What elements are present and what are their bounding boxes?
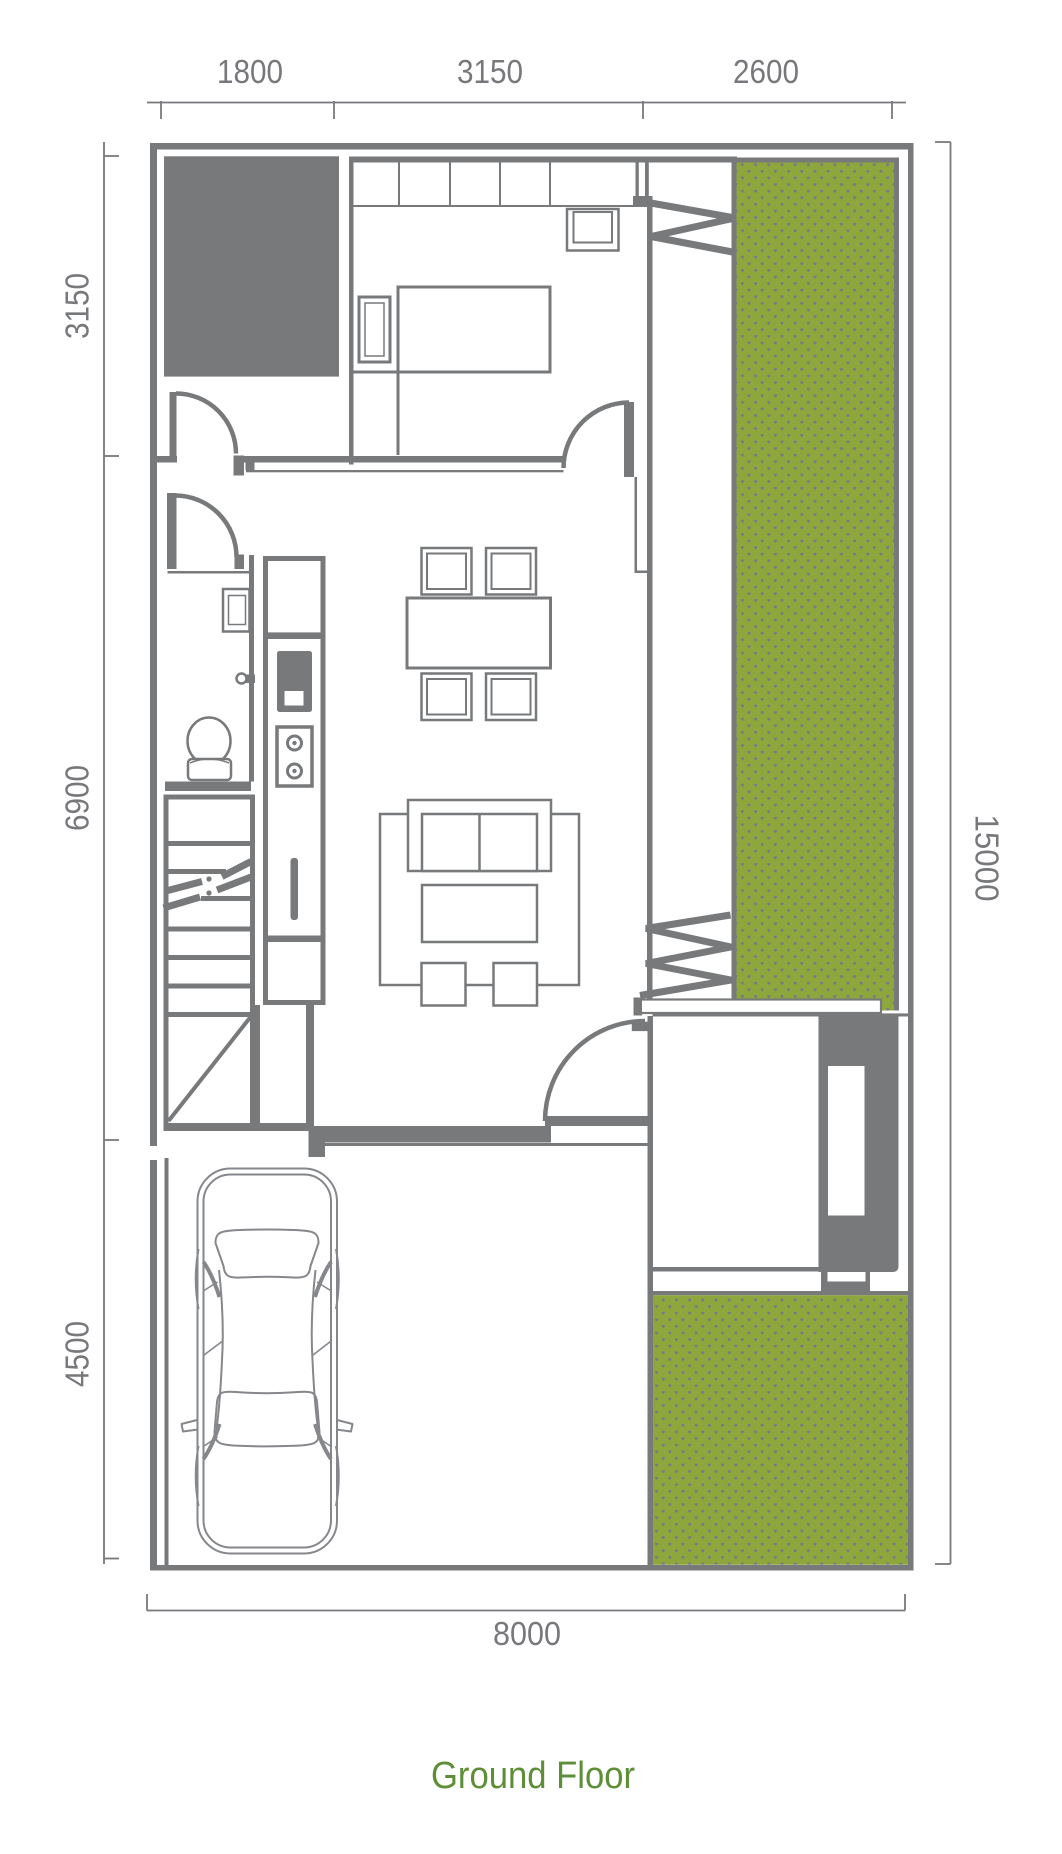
svg-text:Ground Floor: Ground Floor [431,1755,635,1797]
svg-text:1800: 1800 [217,53,283,90]
svg-text:3150: 3150 [59,273,96,339]
svg-text:3150: 3150 [457,53,523,90]
svg-text:2600: 2600 [733,53,799,90]
svg-text:4500: 4500 [59,1321,96,1387]
svg-text:8000: 8000 [493,1615,561,1652]
svg-text:15000: 15000 [969,815,1006,902]
svg-text:6900: 6900 [59,765,96,831]
